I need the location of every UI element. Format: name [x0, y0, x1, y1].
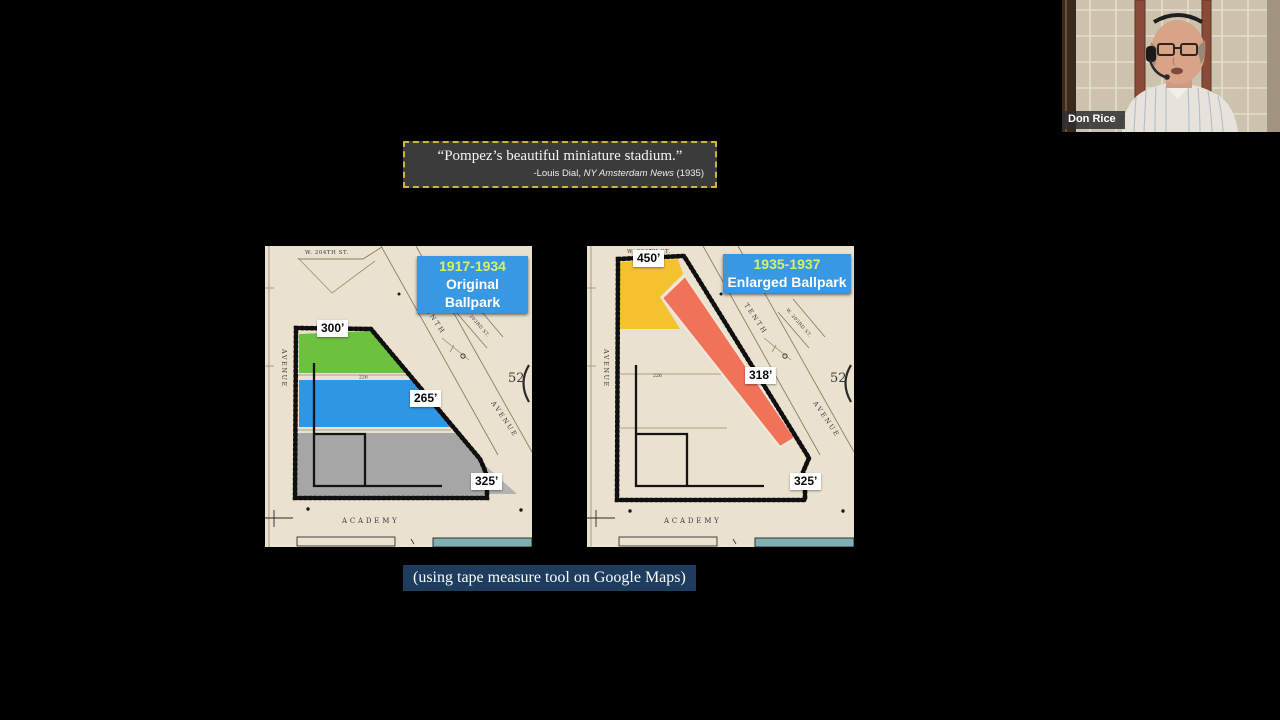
distance-label-left-field: 300’: [317, 320, 348, 337]
svg-text:ACADEMY: ACADEMY: [663, 517, 722, 525]
svg-text:W. 204TH ST.: W. 204TH ST.: [305, 250, 349, 256]
distance-label-right-field: 325’: [471, 473, 502, 490]
presentation-slide: “Pompez’s beautiful miniature stadium.” …: [0, 0, 1280, 720]
map-original-ballpark: W. 204TH ST. TENTH W. 203RD ST. AVENUE A…: [265, 246, 532, 547]
map-title-original: 1917-1934 Original Ballpark: [417, 256, 528, 313]
svg-text:AVENUE: AVENUE: [280, 348, 288, 388]
webcam-tile[interactable]: Don Rice: [1062, 0, 1280, 132]
svg-text:52: 52: [830, 371, 847, 386]
map-title-enlarged: 1935-1937 Enlarged Ballpark: [723, 254, 851, 293]
svg-text:226: 226: [359, 375, 368, 381]
gray-field-polygon: [297, 433, 487, 497]
map-enlarged-ballpark: W. 204TH ST. TENTH W. 203RD ST. AVENUE A…: [587, 246, 854, 547]
participant-name-label: Don Rice: [1062, 111, 1125, 129]
quote-text: “Pompez’s beautiful miniature stadium.”: [405, 147, 715, 166]
svg-text:AVENUE: AVENUE: [602, 348, 610, 388]
headset-mic-icon: [1164, 74, 1170, 80]
caption: (using tape measure tool on Google Maps): [403, 565, 696, 591]
svg-text:226: 226: [653, 373, 662, 379]
svg-text:52: 52: [508, 371, 525, 386]
headset-earcup-icon: [1146, 46, 1156, 62]
quote-attribution: -Louis Dial, NY Amsterdam News (1935): [405, 168, 715, 179]
distance-label-left-field: 450’: [633, 250, 664, 267]
mouth: [1171, 68, 1183, 75]
quote-box: “Pompez’s beautiful miniature stadium.” …: [403, 141, 717, 188]
distance-label-center-field: 318’: [745, 367, 776, 384]
svg-text:ACADEMY: ACADEMY: [341, 517, 400, 525]
distance-label-center-field: 265’: [410, 390, 441, 407]
distance-label-right-field: 325’: [790, 473, 821, 490]
